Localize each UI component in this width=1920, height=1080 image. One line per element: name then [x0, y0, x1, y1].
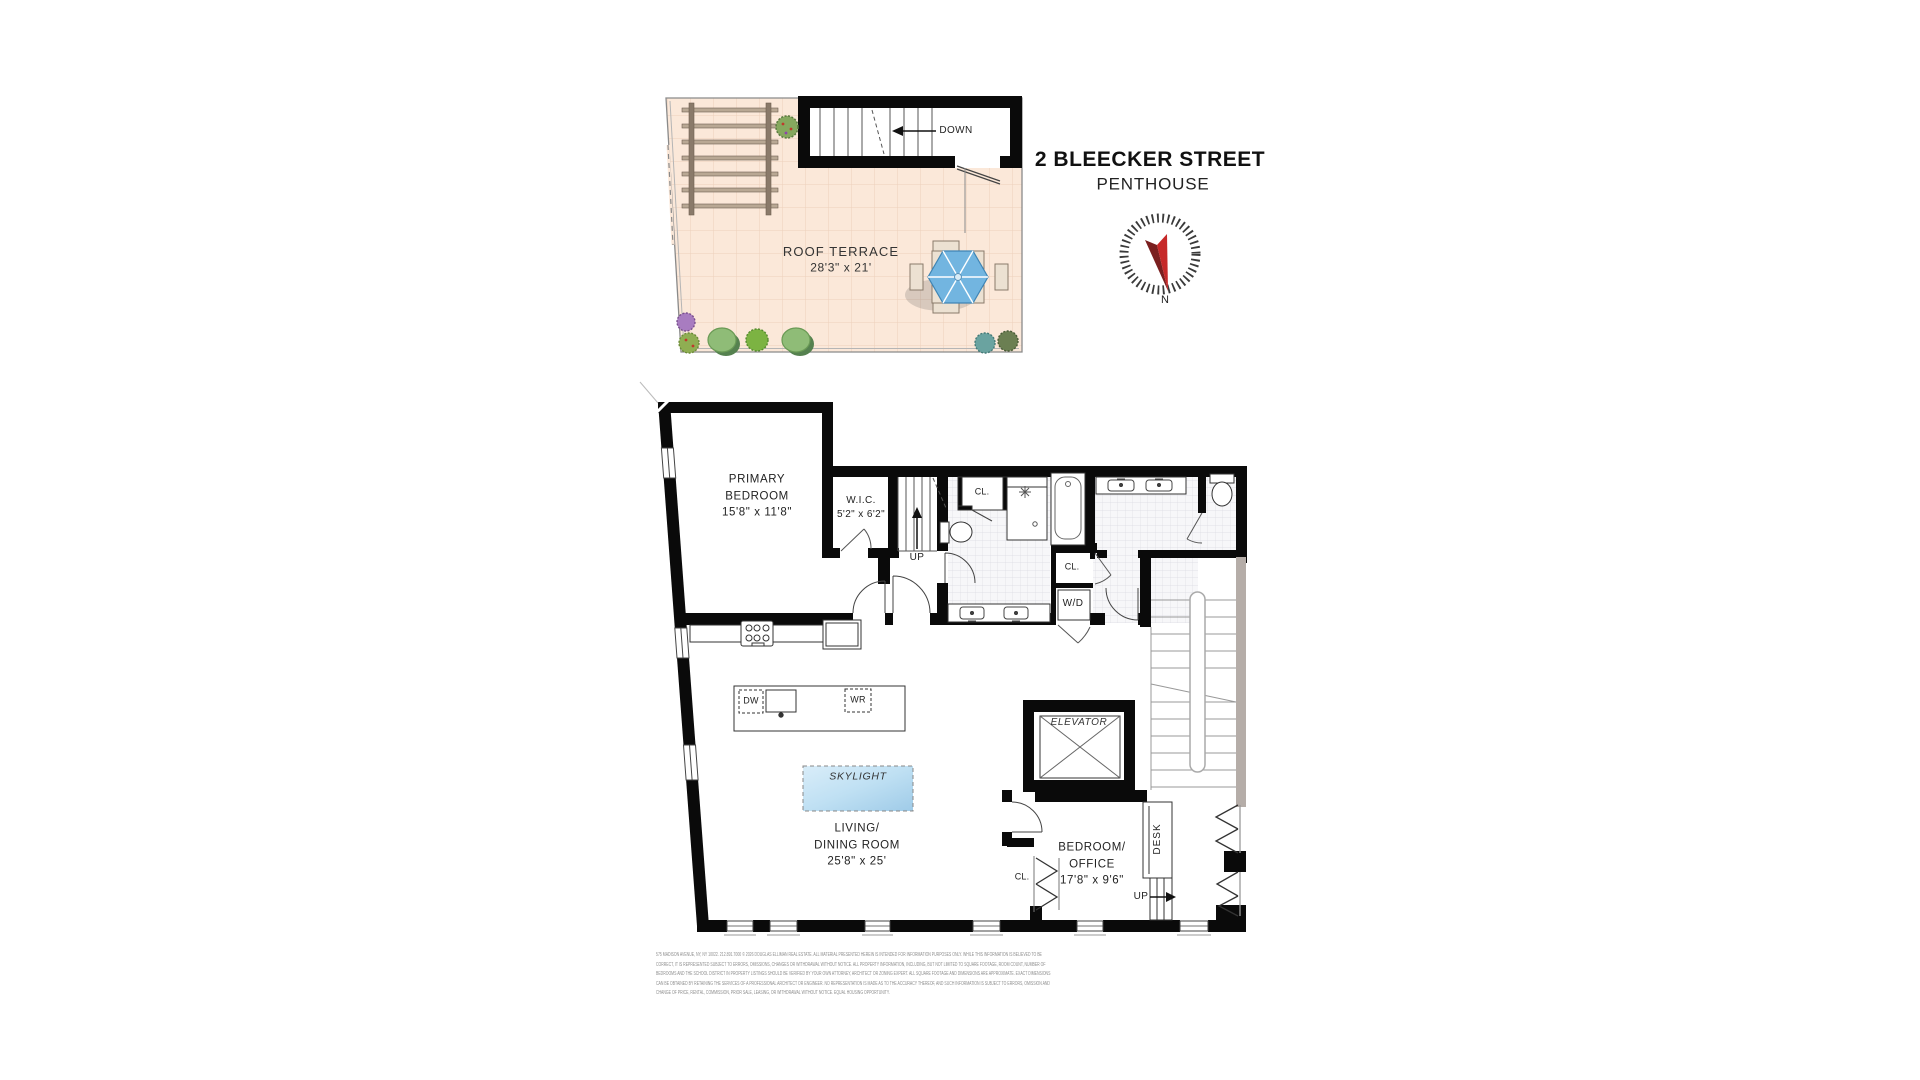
page-subtitle: PENTHOUSE	[1097, 173, 1210, 194]
wic-dims: 5'2" x 6'2"	[837, 508, 885, 522]
range-icon	[741, 621, 773, 646]
bedroom-office-label: BEDROOM/ OFFICE 17'8" x 9'6"	[1058, 839, 1125, 889]
vanity-1	[948, 604, 1050, 622]
vanity-2	[1096, 477, 1186, 494]
living-dining-line2: DINING ROOM	[814, 837, 900, 854]
compass-north-label: N	[1161, 294, 1169, 308]
kitchen-island	[734, 686, 905, 731]
toilet-icon-2	[1210, 474, 1234, 506]
skylight-label: SKYLIGHT	[829, 770, 887, 783]
wine-cooler-label: WR	[850, 694, 865, 705]
disclaimer-line: CHANGE OF PRICE, RENTAL, COMMISSION, PRI…	[656, 989, 1146, 999]
compass-rose	[1124, 218, 1196, 291]
wic-label: W.I.C. 5'2" x 6'2"	[837, 494, 885, 522]
roof-terrace-dims: 28'3" x 21'	[810, 261, 871, 276]
bedroom-office-line2: OFFICE	[1058, 856, 1125, 873]
disclaimer-line: BEDROOMS AND THE SCHOOL DISTRICT IN PROP…	[656, 970, 1146, 980]
disclaimer-line: CORRECT, IT IS REPRESENTED SUBJECT TO ER…	[656, 961, 1146, 971]
closet-living-label: CL.	[1015, 871, 1030, 882]
primary-bedroom-line1: PRIMARY	[722, 471, 792, 488]
living-dining-dims: 25'8" x 25'	[814, 853, 900, 870]
living-dining-label: LIVING/ DINING ROOM 25'8" x 25'	[814, 820, 900, 870]
roof-terrace-label: ROOF TERRACE	[783, 244, 899, 260]
desk-label: DESK	[1152, 823, 1165, 854]
up-office-label: UP	[1134, 891, 1149, 904]
living-dining-line1: LIVING/	[814, 820, 900, 837]
shower-icon	[1007, 477, 1047, 540]
roof-stair-down-label: DOWN	[939, 125, 972, 138]
page-title: 2 BLEECKER STREET	[1035, 147, 1265, 173]
washer-dryer-label: W/D	[1063, 598, 1084, 611]
dishwasher-label: DW	[743, 695, 758, 706]
refrigerator-icon	[823, 620, 861, 649]
bedroom-office-line1: BEDROOM/	[1058, 839, 1125, 856]
toilet-icon-1	[940, 522, 972, 543]
wic-name: W.I.C.	[837, 494, 885, 508]
floorplan-page: 2 BLEECKER STREET PENTHOUSE N DOWN ROOF …	[0, 0, 1920, 1080]
disclaimer-text: 575 MADISON AVENUE, NY, NY 10022. 212.89…	[656, 951, 1356, 999]
primary-bedroom-label: PRIMARY BEDROOM 15'8" x 11'8"	[722, 471, 792, 521]
primary-bedroom-line2: BEDROOM	[722, 488, 792, 505]
up-entry-label: UP	[910, 552, 925, 565]
kitchen	[690, 620, 905, 731]
primary-bedroom-dims: 15'8" x 11'8"	[722, 504, 792, 521]
disclaimer-line: 575 MADISON AVENUE, NY, NY 10022. 212.89…	[656, 951, 1146, 961]
living-closet-doors	[1034, 856, 1059, 912]
floorplan-drawing	[0, 0, 1920, 1080]
stair-party-wall	[1236, 557, 1246, 807]
bedroom-office-dims: 17'8" x 9'6"	[1058, 872, 1125, 889]
elevator-label: ELEVATOR	[1051, 717, 1108, 730]
closet-hall-label: CL.	[1065, 561, 1080, 572]
disclaimer-line: CAN BE OBTAINED BY RETAINING THE SERVICE…	[656, 980, 1146, 990]
closet-bath-label: CL.	[975, 486, 990, 497]
bathtub-icon	[1051, 473, 1085, 545]
